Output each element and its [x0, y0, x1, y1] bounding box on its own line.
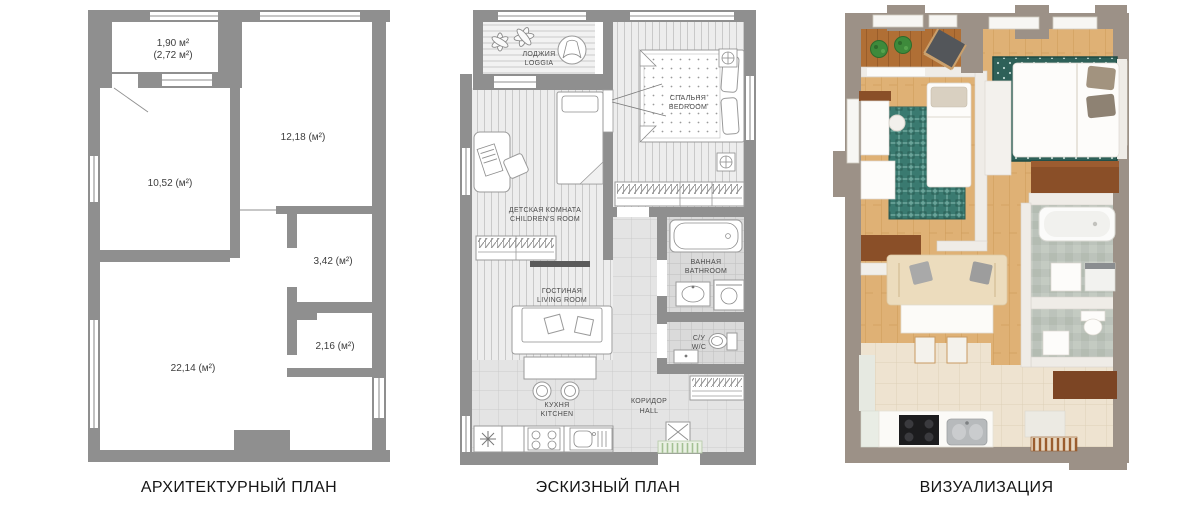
doormat-icon [658, 441, 702, 453]
washbasin-icon [676, 282, 710, 306]
sofa-icon [512, 306, 612, 354]
table [861, 161, 895, 199]
wardrobe-icon [985, 81, 1011, 175]
children-area-label: 10,52 (м²) [148, 178, 193, 189]
cabinet [1025, 411, 1065, 437]
caption-sketch-plan: ЭСКИЗНЫЙ ПЛАН [460, 479, 756, 497]
kitchen-sink-icon [947, 419, 987, 445]
kitchen-label-en: KITCHEN [541, 411, 574, 418]
bedroom-label-en: BEDROOM [669, 104, 707, 111]
children-label-ru: ДЕТСКАЯ КОМНАТА [509, 207, 581, 214]
bathtub-icon [670, 220, 742, 252]
tv-icon [530, 261, 590, 267]
doormat-icon [1031, 437, 1077, 451]
washing-machine-icon [714, 280, 744, 310]
cooktop-icon [899, 415, 939, 445]
wardrobe-icon [1053, 371, 1117, 399]
wardrobe-icon [615, 182, 744, 206]
hall-label-ru: КОРИДОР [631, 398, 667, 405]
washbasin-icon [674, 350, 698, 363]
kitchen-sink-icon [570, 428, 612, 450]
armchair-icon [558, 36, 586, 64]
living-area-label: 22,14 (м²) [171, 363, 216, 374]
bathtub-icon [1039, 207, 1115, 241]
kitchen-label-ru: КУХНЯ [545, 402, 570, 409]
washing-machine-icon [1085, 263, 1115, 291]
kitchen-counter [474, 426, 613, 452]
wc-label-ru: С/У [693, 335, 706, 342]
dresser-icon [1031, 161, 1119, 193]
door-swing-icon [666, 422, 690, 442]
shelf [861, 263, 891, 275]
toilet-icon [709, 333, 737, 350]
wc-area-label: 2,16 (м²) [315, 341, 354, 352]
washbasin-icon [1051, 263, 1081, 291]
children-label-en: CHILDREN'S ROOM [510, 216, 580, 223]
washbasin-icon [1043, 331, 1069, 355]
bathroom-label-en: BATHROOM [685, 268, 727, 275]
stove-icon [528, 428, 560, 450]
living-label-en: LIVING ROOM [537, 297, 587, 304]
bathroom-area-label: 3,42 (м²) [313, 256, 352, 267]
wardrobe-icon [476, 236, 556, 260]
loggia-area-label: 1,90 м² [157, 38, 190, 49]
single-bed-icon [927, 83, 971, 187]
sketch-plan-drawing: ЛОДЖИЯ LOGGIA СПАЛЬНЯ BEDROOM [460, 10, 756, 465]
double-bed-icon [1013, 59, 1127, 159]
bedroom-label-ru: СПАЛЬНЯ [670, 95, 706, 102]
window [867, 68, 925, 76]
architectural-plan-drawing: 1,90 м² (2,72 м²) 12,18 (м²) 10,52 (м²) … [88, 10, 390, 462]
loggia-area-total-label: (2,72 м²) [153, 50, 192, 61]
caption-architectural-plan: АРХИТЕКТУРНЫЙ ПЛАН [88, 479, 390, 497]
sofa-icon [887, 255, 1007, 305]
visualization-panel [833, 5, 1140, 470]
single-bed-icon [557, 92, 603, 184]
hall-label-en: HALL [640, 408, 659, 415]
sketch-plan-panel: ЛОДЖИЯ LOGGIA СПАЛЬНЯ BEDROOM [460, 10, 756, 465]
wardrobe-icon [690, 376, 744, 400]
bedroom-area-label: 12,18 (м²) [281, 132, 326, 143]
visualization-render [833, 5, 1140, 470]
architectural-plan-panel: 1,90 м² (2,72 м²) 12,18 (м²) 10,52 (м²) … [88, 10, 390, 462]
loggia-label-ru: ЛОДЖИЯ [523, 51, 556, 58]
caption-visualization: ВИЗУАЛИЗАЦИЯ [833, 479, 1140, 497]
living-label-ru: ГОСТИНАЯ [542, 288, 582, 295]
bathroom-label-ru: ВАННАЯ [691, 259, 722, 266]
floor-plan-sheet: { "captions": { "plan1": "АРХИТЕКТУРНЫЙ … [0, 0, 1197, 527]
snowflake-fridge-icon [480, 431, 496, 447]
loggia-label-en: LOGGIA [525, 60, 554, 67]
